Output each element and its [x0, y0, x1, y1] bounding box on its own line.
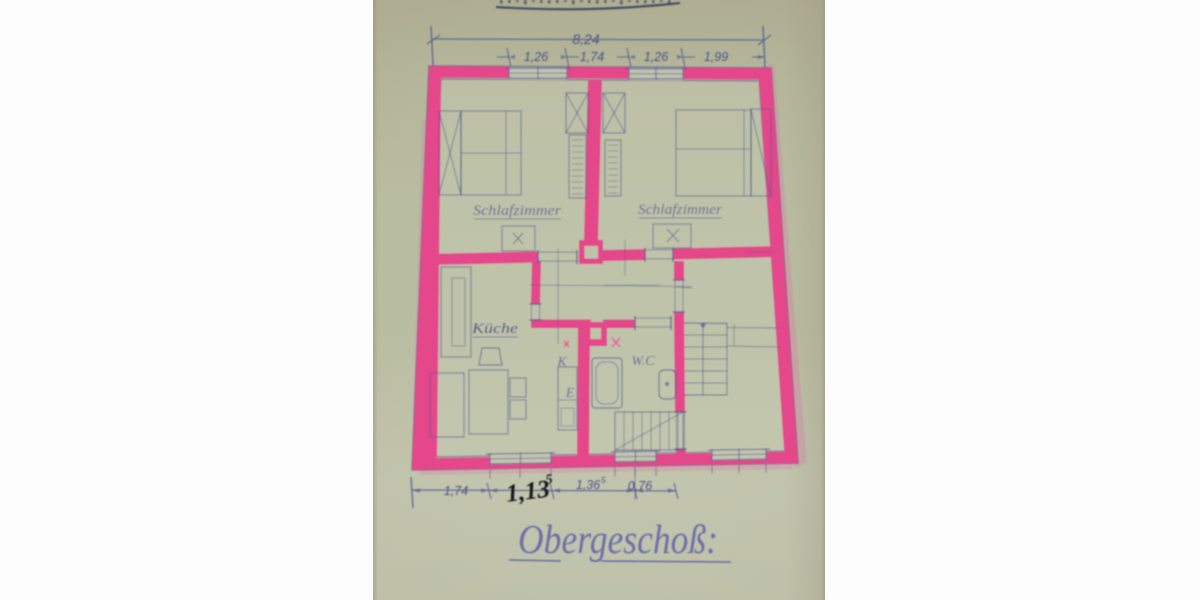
svg-text:Obergeschoß:: Obergeschoß: [518, 516, 718, 562]
svg-text:1,13: 1,13 [505, 476, 552, 508]
svg-text:1,99: 1,99 [704, 50, 728, 64]
svg-text:1,36: 1,36 [576, 478, 600, 492]
svg-text:K: K [556, 355, 567, 370]
svg-text:1,74: 1,74 [444, 484, 468, 498]
svg-text:1,26: 1,26 [524, 50, 548, 64]
svg-text:Schlafzimmer: Schlafzimmer [638, 202, 722, 218]
svg-text:8,24: 8,24 [572, 31, 599, 47]
svg-text:1,26: 1,26 [644, 50, 668, 64]
svg-text:5: 5 [601, 475, 606, 485]
svg-text:E: E [565, 386, 575, 401]
svg-text:1,74: 1,74 [580, 50, 604, 64]
svg-text:W.C: W.C [631, 354, 655, 369]
svg-text:Schlafzimmer: Schlafzimmer [473, 203, 561, 219]
svg-text:0,76: 0,76 [628, 479, 652, 493]
svg-text:Küche: Küche [471, 321, 519, 337]
